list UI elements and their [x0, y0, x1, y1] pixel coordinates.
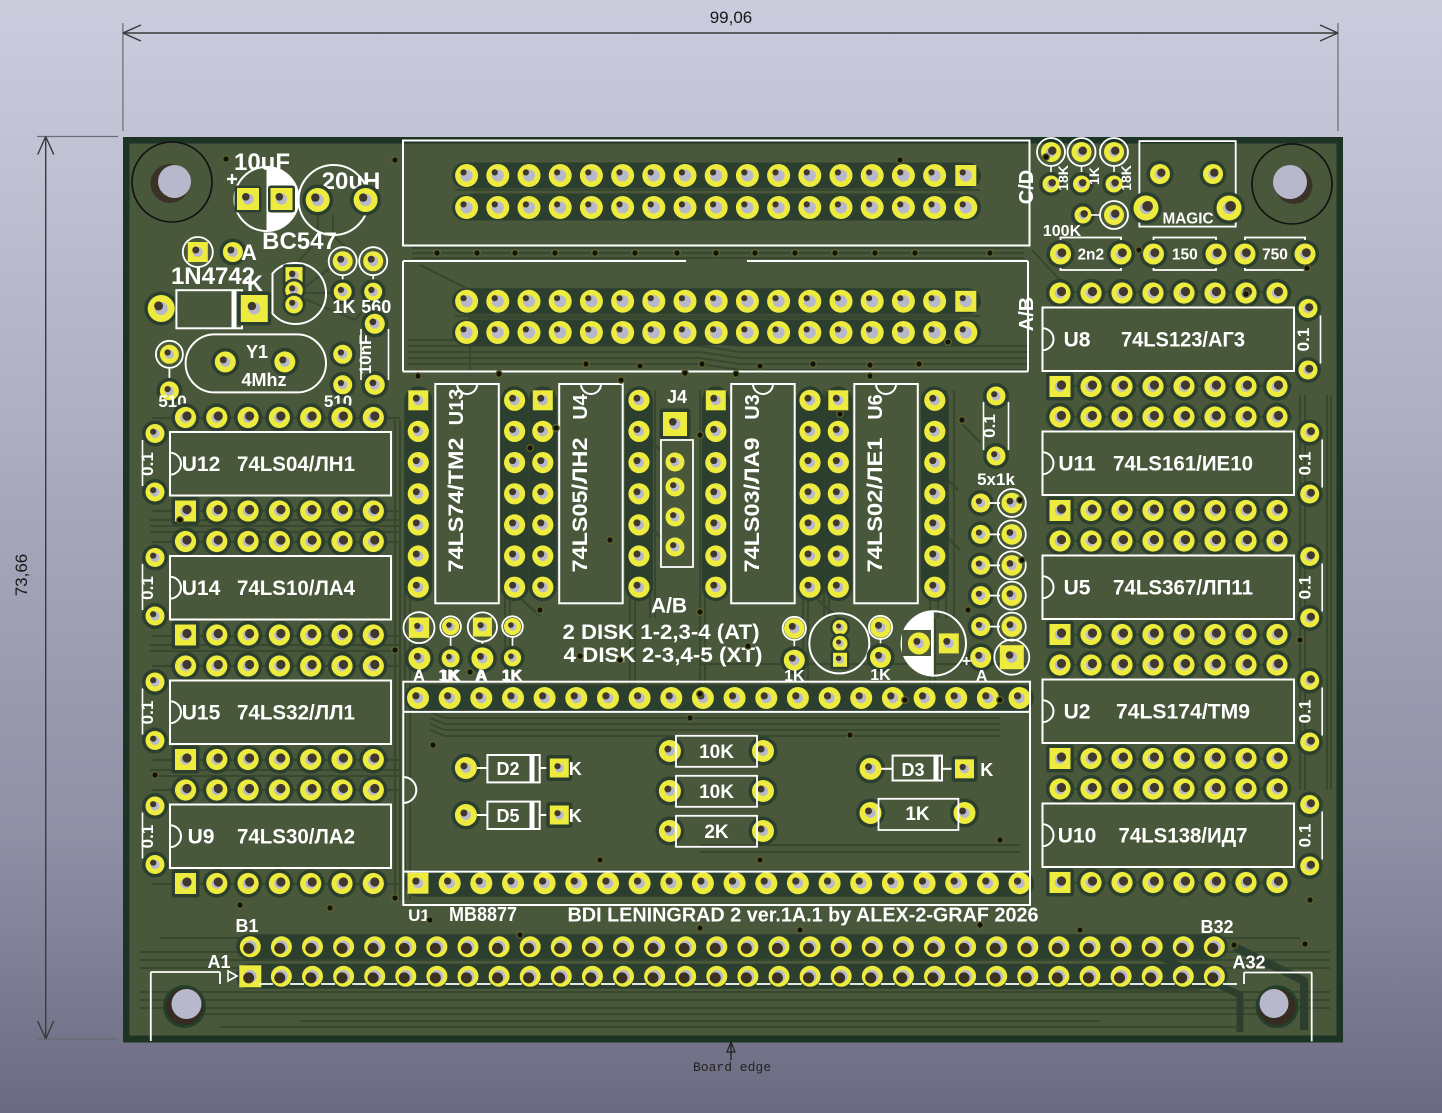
svg-text:U5: U5 — [1064, 577, 1091, 600]
svg-text:10K: 10K — [699, 782, 734, 803]
svg-text:U11: U11 — [1058, 453, 1096, 476]
svg-text:0.1: 0.1 — [1296, 452, 1315, 476]
svg-text:U14: U14 — [182, 577, 221, 600]
svg-text:0.1: 0.1 — [1296, 824, 1315, 848]
svg-text:1K: 1K — [332, 297, 355, 317]
svg-text:K: K — [980, 760, 993, 780]
svg-text:74LS05/ЛН2: 74LS05/ЛН2 — [569, 438, 592, 573]
svg-text:2n2: 2n2 — [1077, 247, 1104, 264]
svg-text:A: A — [241, 240, 257, 265]
svg-text:74LS10/ЛА4: 74LS10/ЛА4 — [237, 577, 355, 600]
svg-text:MAGIC: MAGIC — [1163, 211, 1214, 228]
svg-text:73,66: 73,66 — [12, 554, 31, 597]
svg-text:18K: 18K — [1118, 165, 1134, 191]
svg-text:U8: U8 — [1064, 329, 1091, 352]
svg-text:2K: 2K — [704, 822, 729, 843]
svg-text:74LS367/ЛП11: 74LS367/ЛП11 — [1113, 577, 1253, 600]
svg-text:74LS74/TM2: 74LS74/TM2 — [445, 437, 468, 572]
svg-text:750: 750 — [1262, 247, 1288, 264]
svg-text:74LS138/ИД7: 74LS138/ИД7 — [1119, 825, 1248, 848]
svg-text:74LS32/ЛЛ1: 74LS32/ЛЛ1 — [237, 702, 355, 725]
svg-text:U15: U15 — [182, 702, 221, 725]
svg-text:MB8877: MB8877 — [449, 904, 517, 926]
svg-text:Y1: Y1 — [246, 342, 268, 362]
svg-text:10nF: 10nF — [356, 335, 375, 375]
svg-text:74LS04/ЛН1: 74LS04/ЛН1 — [237, 453, 355, 476]
svg-text:U2: U2 — [1064, 701, 1091, 724]
svg-text:BDI LENINGRAD 2 ver.1A.1 by AL: BDI LENINGRAD 2 ver.1A.1 by ALEX-2-GRAF … — [568, 905, 1039, 927]
svg-text:74LS03/ЛА9: 74LS03/ЛА9 — [741, 438, 764, 573]
svg-text:B1: B1 — [235, 916, 258, 936]
svg-text:5x1k: 5x1k — [977, 470, 1015, 489]
svg-text:0.1: 0.1 — [1296, 576, 1315, 600]
svg-text:A: A — [475, 668, 487, 685]
svg-text:1K: 1K — [438, 668, 459, 685]
svg-text:0.1: 0.1 — [1296, 700, 1315, 724]
svg-text:0.1: 0.1 — [138, 701, 157, 725]
svg-text:U13: U13 — [446, 389, 468, 426]
svg-text:A32: A32 — [1232, 953, 1265, 973]
svg-text:U12: U12 — [182, 453, 221, 476]
svg-text:74LS02/ЛЕ1: 74LS02/ЛЕ1 — [864, 437, 887, 572]
svg-text:D3: D3 — [901, 760, 924, 780]
svg-text:U10: U10 — [1058, 825, 1097, 848]
svg-text:150: 150 — [1172, 247, 1198, 264]
svg-text:B32: B32 — [1200, 917, 1233, 937]
svg-text:99,06: 99,06 — [710, 8, 753, 27]
svg-text:D5: D5 — [496, 806, 519, 826]
svg-text:U4: U4 — [570, 393, 592, 419]
svg-text:J4: J4 — [667, 387, 687, 407]
svg-text:4Mhz: 4Mhz — [242, 370, 287, 390]
svg-text:74LS174/ТМ9: 74LS174/ТМ9 — [1116, 701, 1250, 724]
svg-text:74LS30/ЛА2: 74LS30/ЛА2 — [237, 826, 355, 849]
svg-text:U1: U1 — [408, 906, 430, 925]
svg-text:U9: U9 — [188, 826, 215, 849]
svg-text:1K: 1K — [1086, 167, 1102, 185]
svg-text:K: K — [569, 759, 582, 779]
svg-text:0.1: 0.1 — [1294, 328, 1313, 352]
svg-text:Board edge: Board edge — [693, 1060, 771, 1075]
svg-text:0.1: 0.1 — [138, 576, 157, 600]
svg-text:74LS123/АГ3: 74LS123/АГ3 — [1121, 329, 1245, 352]
svg-text:1K: 1K — [501, 668, 522, 685]
svg-text:A1: A1 — [207, 952, 230, 972]
svg-text:+: + — [962, 653, 971, 670]
svg-text:0.1: 0.1 — [138, 825, 157, 849]
svg-text:74LS161/ИЕ10: 74LS161/ИЕ10 — [1113, 453, 1253, 476]
svg-text:U6: U6 — [865, 394, 887, 420]
svg-text:4 DISK 2-3,4-5 (XT): 4 DISK 2-3,4-5 (XT) — [564, 644, 763, 667]
svg-text:A/B: A/B — [1016, 297, 1038, 331]
svg-text:BC547: BC547 — [262, 228, 337, 255]
svg-text:10K: 10K — [699, 742, 734, 763]
svg-text:0.1: 0.1 — [138, 452, 157, 476]
svg-text:C/D: C/D — [1016, 170, 1038, 204]
svg-text:0.1: 0.1 — [980, 414, 999, 438]
svg-text:18K: 18K — [1055, 165, 1071, 191]
svg-text:U3: U3 — [742, 394, 764, 420]
svg-text:K: K — [569, 806, 582, 826]
svg-text:D2: D2 — [496, 759, 519, 779]
svg-text:A/B: A/B — [651, 595, 687, 618]
svg-text:2 DISK 1-2,3-4 (AT): 2 DISK 1-2,3-4 (AT) — [563, 621, 760, 644]
svg-text:A: A — [413, 668, 425, 685]
svg-text:1K: 1K — [905, 804, 930, 825]
svg-text:1N4742: 1N4742 — [171, 263, 255, 290]
